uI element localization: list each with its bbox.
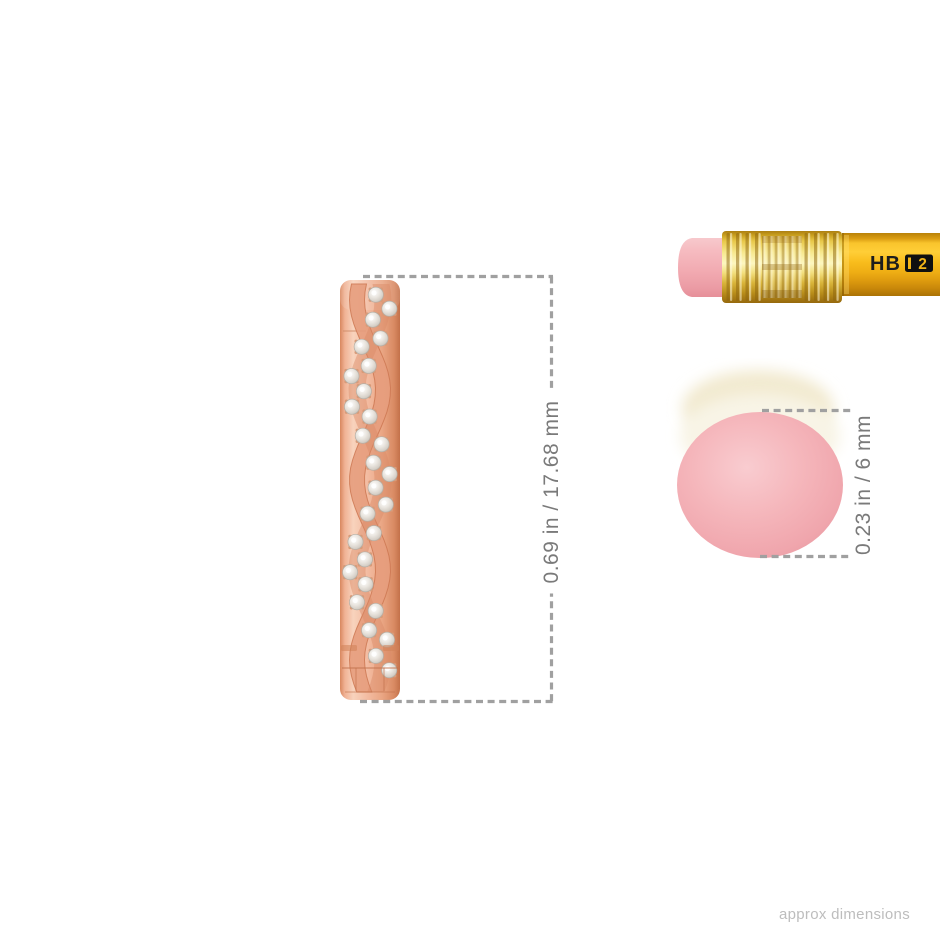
diamond-sparkle bbox=[348, 402, 353, 407]
diamond-sparkle bbox=[385, 304, 390, 309]
diamond-sparkle bbox=[377, 440, 382, 445]
diamond-sparkle bbox=[361, 580, 366, 585]
diamond-sparkle bbox=[361, 555, 366, 560]
pencil-body-chamfer-highlight bbox=[844, 235, 849, 294]
eraser-diameter-label: 0.23 in / 6 mm bbox=[852, 415, 876, 555]
approx-dimensions-note: approx dimensions bbox=[779, 906, 910, 923]
diamond-sparkle bbox=[376, 334, 381, 339]
diamond-sparkle bbox=[371, 607, 376, 612]
eraser-end-face bbox=[677, 412, 843, 558]
diamond-sparkle bbox=[372, 652, 377, 657]
product-dimensions-canvas: HB 2 bbox=[0, 0, 940, 940]
diamond-sparkle bbox=[360, 387, 365, 392]
diamond-sparkle bbox=[383, 635, 388, 640]
pencil-grade-text: HB bbox=[870, 253, 901, 275]
pencil-illustration: HB 2 bbox=[670, 226, 940, 310]
diamond-sparkle bbox=[369, 315, 374, 320]
diamond-sparkle bbox=[353, 598, 358, 603]
diamond-sparkle bbox=[347, 372, 352, 377]
pencil-ferrule bbox=[722, 231, 842, 303]
diamond-sparkle bbox=[363, 509, 368, 514]
badge-left-stripe bbox=[908, 258, 911, 270]
diamond-sparkle bbox=[351, 538, 356, 543]
diamond-sparkle bbox=[381, 500, 386, 505]
diamond-sparkle bbox=[364, 362, 369, 367]
diamond-sparkle bbox=[371, 290, 376, 295]
pencil-grade-number: 2 bbox=[918, 256, 927, 273]
pencil-eraser bbox=[678, 238, 724, 297]
pencil-grade-badge: 2 bbox=[905, 255, 933, 274]
diamond-sparkle bbox=[370, 529, 375, 534]
diamond-sparkle bbox=[385, 470, 390, 475]
pencil-body-seam bbox=[842, 233, 844, 296]
diamond-sparkle bbox=[371, 483, 376, 488]
diamond-sparkle bbox=[346, 568, 351, 573]
diamond-sparkle bbox=[357, 342, 362, 347]
diamond-sparkle bbox=[369, 458, 374, 463]
diamond-sparkle bbox=[365, 626, 370, 631]
earring-height-label: 0.69 in / 17.68 mm bbox=[532, 391, 572, 594]
diamond-sparkle bbox=[365, 412, 370, 417]
diamond-sparkle bbox=[358, 431, 363, 436]
earring-illustration bbox=[336, 276, 404, 704]
